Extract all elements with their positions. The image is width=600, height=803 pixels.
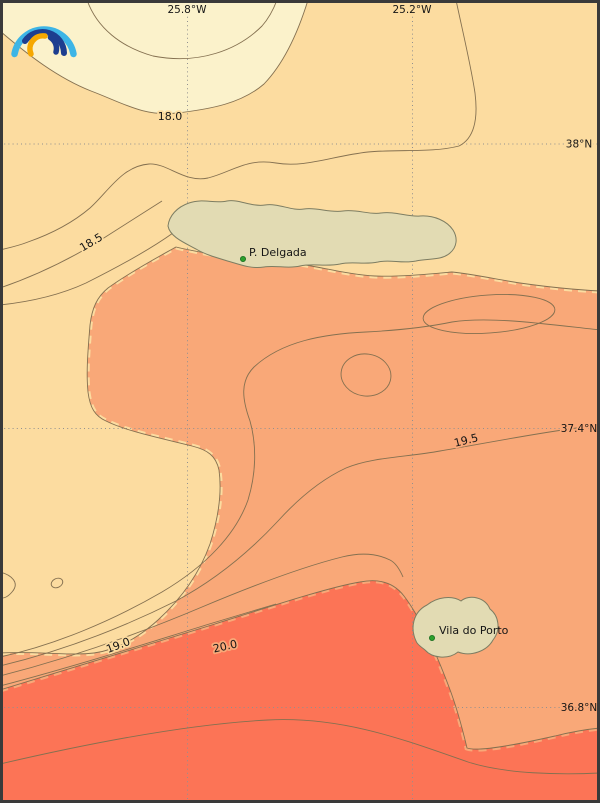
place-dot-vila-do-porto <box>429 635 434 640</box>
longitude-label-25-8w: 25.8°W <box>167 4 207 16</box>
place-label-p-delgada: P. Delgada <box>249 246 307 259</box>
latitude-label-37-4n: 37.4°N <box>561 423 597 435</box>
sst-contour-map: P. Delgada Vila do Porto 18.0 18.5 19.5 … <box>0 0 600 803</box>
place-label-vila-do-porto: Vila do Porto <box>439 624 509 637</box>
longitude-label-25-2w: 25.2°W <box>392 4 432 16</box>
map-canvas: P. Delgada Vila do Porto 18.0 18.5 19.5 … <box>0 0 600 803</box>
isotherm-label-18-0: 18.0 <box>158 110 183 123</box>
place-dot-p-delgada <box>240 256 245 261</box>
latitude-label-36-8n: 36.8°N <box>561 702 597 714</box>
latitude-label-38n: 38°N <box>566 139 592 151</box>
